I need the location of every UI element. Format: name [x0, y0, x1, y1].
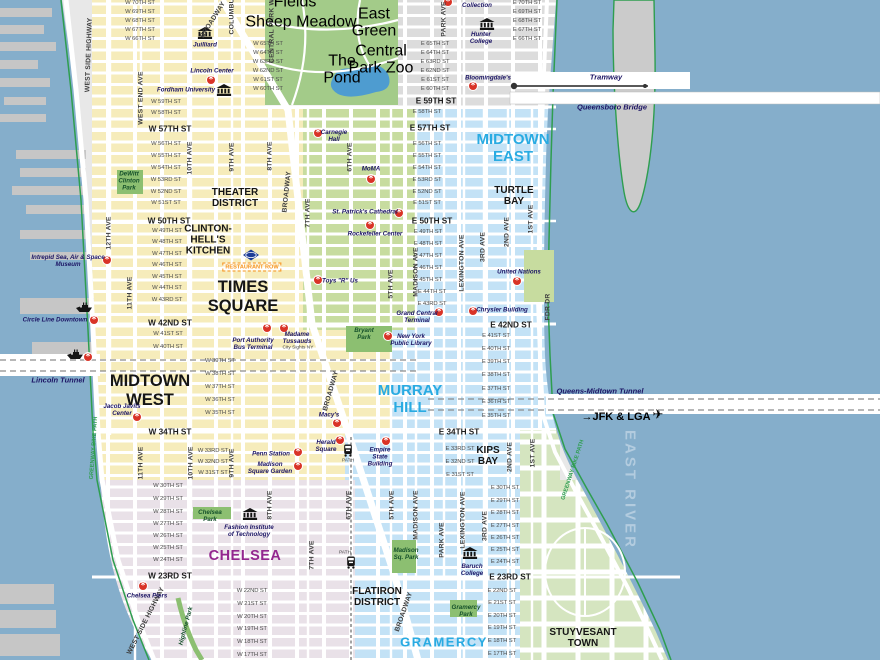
label-broadway: BROADWAY	[394, 591, 414, 632]
institution-icon	[243, 508, 258, 520]
label-w-54th-st: W 54TH ST	[151, 166, 181, 172]
label-broadway: BROADWAY	[199, 1, 227, 40]
train-station-icon	[346, 557, 356, 570]
label-central-park-zoo: Central Park Zoo	[349, 43, 414, 78]
label-frick-collection: Frick Collection	[462, 0, 492, 9]
label-w-21st-st: W 21ST ST	[237, 602, 266, 608]
poi-marker-icon: *	[381, 436, 391, 446]
label-turtle-bay: TURTLE BAY	[494, 185, 533, 207]
label-e-50th-st: E 50TH ST	[412, 217, 453, 226]
label-toys-r-us: Toys "R" Us	[322, 278, 358, 285]
label-rockefeller-center: Rockefeller Center	[348, 231, 403, 238]
label-jfk-lga: →JFK & LGA	[581, 411, 650, 423]
label-greenway-bike-path: GREENWAY BIKE PATH	[89, 416, 99, 479]
label-chrysler-building: Chrysler Building	[476, 307, 528, 314]
poi-marker-icon: *	[468, 81, 478, 91]
label-3rd-ave: 3RD AVE	[482, 511, 489, 541]
train-station-icon	[343, 445, 353, 458]
label-w-20th-st: W 20TH ST	[237, 615, 267, 621]
label-w-32nd-st: W 32ND ST	[198, 460, 229, 466]
label-e-31st-st: E 31ST ST	[446, 473, 474, 479]
label-8th-ave: 8TH AVE	[267, 141, 274, 170]
label-e-62nd-st: E 62ND ST	[421, 69, 450, 75]
label-w-47th-st: W 47TH ST	[152, 252, 182, 258]
label-e-59th-st: E 59TH ST	[416, 97, 457, 106]
label-e-53rd-st: E 53RD ST	[413, 178, 442, 184]
poi-marker-icon: *	[313, 128, 323, 138]
label-w-49th-st: W 49TH ST	[152, 229, 182, 235]
label-w-46th-st: W 46TH ST	[152, 263, 182, 269]
label-6th-ave: 6TH AVE	[347, 142, 354, 171]
label-w-35th-st: W 35TH ST	[205, 411, 235, 417]
label-w-41st-st: W 41ST ST	[153, 332, 182, 338]
label-path: PATH	[342, 459, 354, 464]
label-stuyvesant-town: STUYVESANT TOWN	[549, 627, 616, 649]
poi-marker-icon: *	[332, 418, 342, 428]
label-w-70th-st: W 70TH ST	[125, 1, 155, 7]
label-west-side-highway: WEST SIDE HIGHWAY	[126, 586, 166, 656]
label-e-19th-st: E 19TH ST	[488, 626, 516, 632]
label-w-38th-st: W 38TH ST	[205, 372, 235, 378]
label-1st-ave: 1ST AVE	[530, 439, 537, 468]
label-queens-midtown-tunnel: Queens-Midtown Tunnel	[557, 387, 644, 396]
label-1st-ave: 1ST AVE	[528, 205, 535, 234]
label-lincoln-center: Lincoln Center	[190, 68, 233, 75]
label-w-48th-st: W 48TH ST	[152, 240, 182, 246]
label-fields: Fields	[274, 0, 317, 11]
label-e-70th-st: E 70TH ST	[513, 1, 541, 7]
label-fashion-institute-of-technology: Fashion Institute of Technology	[224, 524, 274, 538]
label-e-41st-st: E 41ST ST	[482, 334, 510, 340]
label-circle-line-downtown: Circle Line Downtown	[23, 317, 88, 324]
label-e-63rd-st: E 63RD ST	[421, 60, 450, 66]
institution-icon	[480, 18, 495, 30]
label-e-52nd-st: E 52ND ST	[413, 190, 442, 196]
label-w-57th-st: W 57TH ST	[149, 125, 192, 134]
label-w-61st-st: W 61ST ST	[253, 78, 282, 84]
label-w-26th-st: W 26TH ST	[153, 534, 183, 540]
label-chelsea-park: Chelsea Park	[198, 509, 222, 523]
label-w-31st-st: W 31ST ST	[198, 471, 227, 477]
label-w-34th-st: W 34TH ST	[149, 428, 192, 437]
label-7th-ave: 7TH AVE	[305, 198, 312, 227]
label-park-ave: PARK AVE	[439, 522, 446, 557]
ferry-icon	[67, 350, 85, 361]
label-the-pond: The Pond	[323, 53, 360, 88]
label-path: PATH	[339, 551, 351, 556]
label-fordham-university: Fordham University	[157, 87, 215, 94]
label-w-43rd-st: W 43RD ST	[152, 298, 183, 304]
poi-marker-icon: *	[512, 276, 522, 286]
label-e-33rd-st: E 33RD ST	[446, 447, 475, 453]
label-w-69th-st: W 69TH ST	[125, 10, 155, 16]
manhattan-tourist-map[interactable]: ************************THEATER DISTRICT…	[0, 0, 880, 660]
label-restaurant-row: RESTAURANT ROW	[222, 263, 281, 272]
label-murray-hill: MURRAY HILL	[378, 382, 442, 416]
label-kips-bay: KIPS BAY	[476, 445, 499, 467]
poi-marker-icon: *	[335, 435, 345, 445]
label-12th-ave: 12TH AVE	[106, 216, 113, 249]
poi-marker-icon: *	[279, 323, 289, 333]
poi-marker-icon: *	[102, 255, 112, 265]
label-east-green: East Green	[352, 6, 396, 41]
label-e-61st-st: E 61ST ST	[421, 78, 449, 84]
label-3rd-ave: 3RD AVE	[480, 232, 487, 262]
label-e-60th-st: E 60TH ST	[421, 87, 449, 93]
label-w-58th-st: W 58TH ST	[151, 111, 181, 117]
label-times-square: TIMES SQUARE	[208, 278, 279, 316]
poi-marker-icon: *	[434, 307, 444, 317]
label-madison-square-garden: Madison Square Garden	[248, 461, 292, 475]
label-midtown-east: MIDTOWN EAST	[476, 131, 549, 165]
label-east-river: EAST RIVER	[622, 430, 639, 550]
label-queensboro-bridge: Queensboro Bridge	[577, 103, 647, 112]
label-e-48th-st: E 48TH ST	[414, 242, 442, 248]
label-clinton-hell-s-kitchen: CLINTON- HELL'S KITCHEN	[184, 224, 232, 257]
label-w-55th-st: W 55TH ST	[151, 154, 181, 160]
label-e-43rd-st: E 43RD ST	[418, 302, 447, 308]
poi-marker-icon: *	[262, 323, 272, 333]
label-w-65th-st: W 65TH ST	[253, 42, 283, 48]
label-sheep-meadow: Sheep Meadow	[245, 13, 356, 30]
label-madison-ave: MADISON AVE	[413, 490, 420, 539]
poi-marker-icon: *	[366, 174, 376, 184]
label-2nd-ave: 2ND AVE	[504, 217, 511, 247]
label-w-19th-st: W 19TH ST	[237, 627, 267, 633]
label-w-45th-st: W 45TH ST	[152, 275, 182, 281]
label-e-39th-st: E 39TH ST	[482, 360, 510, 366]
label-hunter-college: Hunter College	[470, 31, 492, 45]
label-w-30th-st: W 30TH ST	[153, 484, 183, 490]
label-w-64th-st: W 64TH ST	[253, 51, 283, 57]
label-w-40th-st: W 40TH ST	[153, 345, 183, 351]
label-tramway: Tramway	[590, 73, 622, 82]
label-moma: MoMA	[362, 166, 381, 173]
label-west-end-ave: WEST END AVE	[138, 71, 145, 124]
label-e-18th-st: E 18TH ST	[488, 639, 516, 645]
label-e-29th-st: E 29TH ST	[491, 499, 519, 505]
label-e-17th-st: E 17TH ST	[488, 652, 516, 658]
poi-marker-icon: *	[132, 412, 142, 422]
label-w-17th-st: W 17TH ST	[237, 653, 267, 659]
label-carnegie-hall: Carnegie Hall	[321, 129, 347, 143]
label-lincoln-tunnel: Lincoln Tunnel	[31, 376, 84, 385]
label-w-23rd-st: W 23RD ST	[148, 572, 192, 581]
label-e-20th-st: E 20TH ST	[488, 614, 516, 620]
label-park-ave: PARK AVE	[441, 1, 448, 36]
label-gramercy-park: Gramercy Park	[452, 604, 481, 618]
label-e-65th-st: E 65TH ST	[421, 42, 449, 48]
label-w-52nd-st: W 52ND ST	[151, 190, 182, 196]
label-e-42nd-st: E 42ND ST	[490, 321, 531, 330]
label-e-35th-st: E 35TH ST	[482, 414, 510, 420]
label-e-30th-st: E 30TH ST	[491, 486, 519, 492]
label-9th-ave: 9TH AVE	[229, 142, 236, 171]
label-w-63rd-st: W 63RD ST	[253, 60, 284, 66]
label-w-60th-st: W 60TH ST	[253, 87, 283, 93]
label-gramercy: GRAMERCY	[400, 635, 488, 650]
label-w-27th-st: W 27TH ST	[153, 522, 183, 528]
label-8th-ave: 8TH AVE	[267, 490, 274, 519]
label-e-27th-st: E 27TH ST	[491, 524, 519, 530]
label-e-38th-st: E 38TH ST	[482, 373, 510, 379]
label-w-39th-st: W 39TH ST	[205, 359, 235, 365]
label-e-37th-st: E 37TH ST	[482, 387, 510, 393]
map-labels-layer: ************************THEATER DISTRICT…	[0, 0, 880, 660]
label-e-32nd-st: E 32ND ST	[446, 460, 475, 466]
label-e-69th-st: E 69TH ST	[513, 10, 541, 16]
label-w-18th-st: W 18TH ST	[237, 640, 267, 646]
label-e-56th-st: E 56TH ST	[413, 142, 441, 148]
label-e-54th-st: E 54TH ST	[413, 166, 441, 172]
label-madison-sq-park: Madison Sq. Park	[393, 547, 418, 561]
institution-icon	[217, 84, 232, 96]
label-midtown-west: MIDTOWN WEST	[110, 372, 190, 410]
label-w-24th-st: W 24TH ST	[153, 558, 183, 564]
label-grand-central-terminal: Grand Central Terminal	[396, 310, 437, 324]
label-empire-state-building: Empire State Building	[368, 447, 393, 468]
label-flatiron-district: FLATIRON DISTRICT	[352, 586, 402, 608]
label-2nd-ave: 2ND AVE	[507, 442, 514, 472]
label-w-53rd-st: W 53RD ST	[151, 178, 182, 184]
label-e-47th-st: E 47TH ST	[414, 254, 442, 260]
poi-marker-icon: *	[313, 275, 323, 285]
institution-icon	[463, 547, 478, 559]
label-united-nations: United Nations	[497, 269, 541, 276]
label-e-26th-st: E 26TH ST	[491, 536, 519, 542]
label-central-park-west: CENTRAL PARK WEST	[269, 0, 276, 63]
label-: ✈	[653, 408, 664, 423]
label-w-50th-st: W 50TH ST	[148, 217, 191, 226]
label-w-22nd-st: W 22ND ST	[237, 589, 268, 595]
poi-marker-icon: *	[365, 220, 375, 230]
label-w-29th-st: W 29TH ST	[153, 497, 183, 503]
label-e-25th-st: E 25TH ST	[491, 548, 519, 554]
poi-marker-icon: *	[383, 331, 393, 341]
label-w-42nd-st: W 42ND ST	[148, 319, 192, 328]
label-w-44th-st: W 44TH ST	[152, 286, 182, 292]
label-e-46th-st: E 46TH ST	[414, 266, 442, 272]
label-e-45th-st: E 45TH ST	[414, 278, 442, 284]
label-bloomingdale-s: Bloomingdale's	[465, 75, 511, 82]
label-juilliard: Juilliard	[193, 42, 217, 49]
label-herald-square: Herald Square	[316, 439, 337, 453]
label-w-28th-st: W 28TH ST	[153, 510, 183, 516]
label-highline-park: Highline Park	[178, 606, 195, 646]
label-west-side-highway: WEST SIDE HIGHWAY	[84, 18, 94, 93]
label-e-67th-st: E 67TH ST	[513, 28, 541, 34]
label-5th-ave: 5TH AVE	[388, 269, 395, 298]
poi-marker-icon: *	[138, 581, 148, 591]
label-10th-ave: 10TH AVE	[187, 141, 194, 174]
label-bryant-park: Bryant Park	[354, 327, 374, 341]
label-madison-ave: MADISON AVE	[413, 247, 420, 296]
restaurant-row-logo-icon	[243, 250, 259, 261]
label-w-62nd-st: W 62ND ST	[253, 69, 284, 75]
label-e-66th-st: E 66TH ST	[513, 37, 541, 43]
label-e-64th-st: E 64TH ST	[421, 51, 449, 57]
label-jacob-javits-center: Jacob Javits Center	[103, 403, 140, 417]
label-e-34th-st: E 34TH ST	[439, 428, 480, 437]
poi-marker-icon: *	[468, 306, 478, 316]
label-e-68th-st: E 68TH ST	[513, 19, 541, 25]
label-macy-s: Macy's	[319, 412, 339, 419]
label-w-66th-st: W 66TH ST	[125, 37, 155, 43]
institution-icon	[198, 27, 213, 39]
label-broadway: BROADWAY	[281, 171, 292, 213]
poi-marker-icon: *	[83, 352, 93, 362]
poi-marker-icon: *	[394, 208, 404, 218]
label-e-51st-st: E 51ST ST	[413, 201, 441, 207]
label-9th-ave: 9TH AVE	[229, 448, 236, 477]
label-port-authority-bus-terminal: Port Authority Bus Terminal	[232, 337, 273, 351]
label-11th-ave: 11TH AVE	[127, 277, 134, 310]
ferry-icon	[76, 303, 94, 314]
label-columbus: COLUMBUS	[229, 0, 236, 34]
poi-marker-icon: *	[89, 315, 99, 325]
label-st-patrick-s-cathedral: St. Patrick's Cathedral	[332, 209, 397, 216]
label-lexington-ave: LEXINGTON AVE	[459, 234, 466, 291]
label-intrepid-sea-air-space-museum: Intrepid Sea, Air & Space Museum	[31, 254, 104, 268]
label-e-44th-st: E 44TH ST	[418, 290, 446, 296]
label-greenway-bike-path: GREENWAY BIKE PATH	[560, 439, 585, 501]
label-theater-district: THEATER DISTRICT	[212, 187, 258, 209]
label-fdr-dr: FDR DR	[545, 294, 552, 321]
label-w-51st-st: W 51ST ST	[151, 201, 180, 207]
label-lexington-ave: LEXINGTON AVE	[460, 491, 467, 548]
label-e-24th-st: E 24TH ST	[491, 560, 519, 566]
label-7th-ave: 7TH AVE	[309, 540, 316, 569]
label-w-59th-st: W 59TH ST	[151, 100, 181, 106]
label-w-56th-st: W 56TH ST	[151, 142, 181, 148]
label-5th-ave: 5TH AVE	[389, 490, 396, 519]
poi-marker-icon: *	[443, 0, 453, 7]
label-broadway: BROADWAY	[322, 370, 340, 412]
poi-marker-icon: *	[206, 75, 216, 85]
label-new-york-public-library: New York Public Library	[390, 333, 431, 347]
label-e-57th-st: E 57TH ST	[410, 124, 451, 133]
label-e-58th-st: E 58TH ST	[413, 110, 441, 116]
label-madame-tussauds: Madame Tussauds	[283, 331, 312, 345]
label-chelsea-piers: Chelsea Piers	[127, 593, 168, 600]
label-6th-ave: 6TH AVE	[346, 490, 353, 519]
label-e-55th-st: E 55TH ST	[413, 154, 441, 160]
label-11th-ave: 11TH AVE	[138, 447, 145, 480]
label-10th-ave: 10TH AVE	[188, 446, 195, 479]
label-e-49th-st: E 49TH ST	[414, 230, 442, 236]
label-e-36th-st: E 36TH ST	[482, 400, 510, 406]
label-e-28th-st: E 28TH ST	[491, 511, 519, 517]
label-w-36th-st: W 36TH ST	[205, 398, 235, 404]
label-city-sights-ny: City Sights NY	[283, 346, 314, 351]
poi-marker-icon: *	[293, 447, 303, 457]
label-w-68th-st: W 68TH ST	[125, 19, 155, 25]
label-w-37th-st: W 37TH ST	[205, 385, 235, 391]
poi-marker-icon: *	[293, 461, 303, 471]
label-chelsea: CHELSEA	[209, 548, 282, 564]
label-w-25th-st: W 25TH ST	[153, 546, 183, 552]
label-baruch-college: Baruch College	[461, 563, 483, 577]
label-w-67th-st: W 67TH ST	[125, 28, 155, 34]
label-e-23rd-st: E 23RD ST	[489, 573, 530, 582]
label-dewitt-clinton-park: DeWitt Clinton Park	[118, 171, 139, 192]
label-e-21st-st: E 21ST ST	[488, 601, 516, 607]
label-e-40th-st: E 40TH ST	[482, 347, 510, 353]
label-e-22nd-st: E 22ND ST	[488, 589, 517, 595]
label-w-33rd-st: W 33RD ST	[198, 449, 229, 455]
label-penn-station: Penn Station	[252, 451, 290, 458]
